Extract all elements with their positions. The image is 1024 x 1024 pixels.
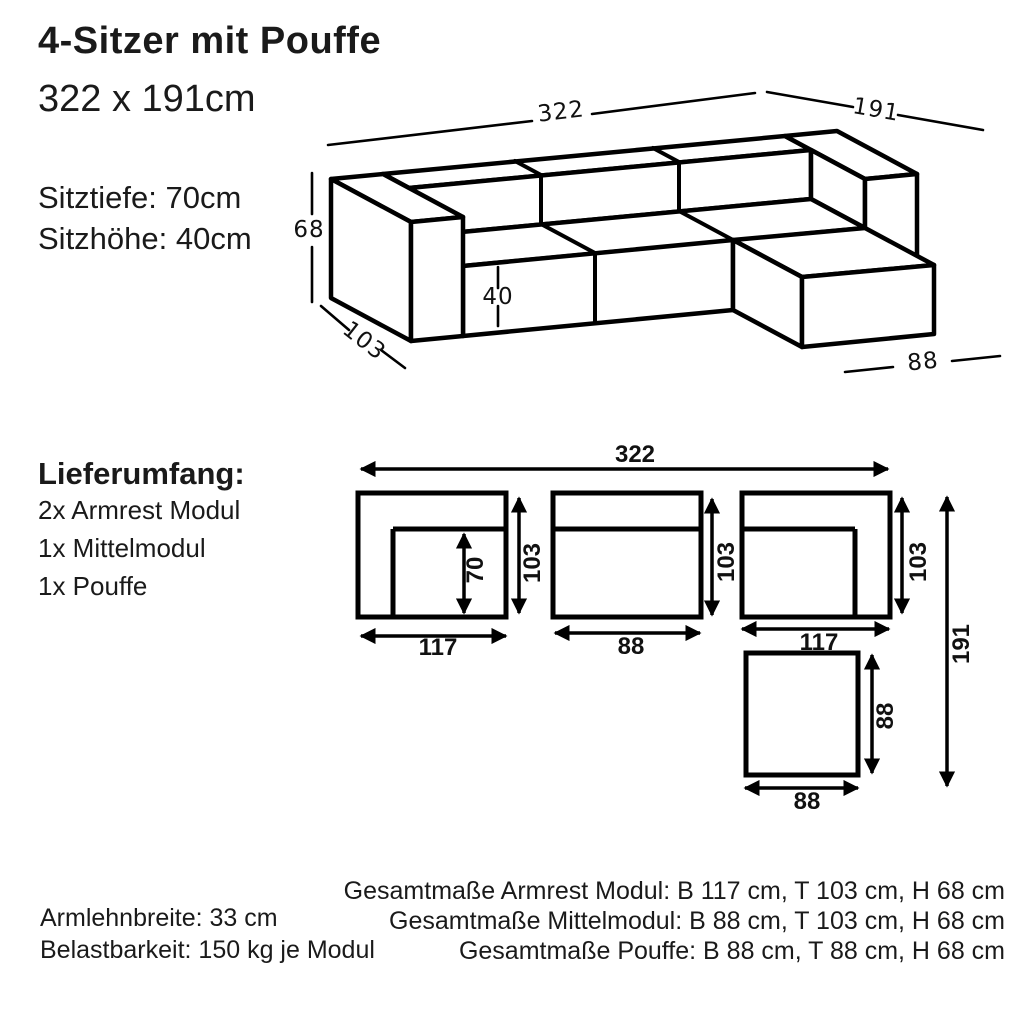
- plan-dim-depth-middle-label: 103: [713, 542, 741, 582]
- overall-size-armrest-module-text: Gesamtmaße Armrest Modul: B 117 cm, T 10…: [344, 877, 1005, 906]
- pouffe-plan: [746, 653, 858, 775]
- seat-depth-text: Sitztiefe: 70cm: [38, 180, 241, 216]
- armrest-module-right-plan: [742, 493, 890, 617]
- overall-size-pouffe-text: Gesamtmaße Pouffe: B 88 cm, T 88 cm, H 6…: [459, 937, 1005, 966]
- plan-dim-pouffe-width-label: 88: [794, 788, 821, 816]
- iso-dim-pouffe-width-label: 88: [906, 347, 940, 376]
- delivery-item-middle: 1x Mittelmodul: [38, 533, 206, 564]
- plan-dim-armrest-right-label: 117: [800, 629, 839, 657]
- plan-dim-middle-width-label: 88: [618, 633, 645, 661]
- iso-dim-seat-height-label: 40: [482, 284, 513, 310]
- plan-dim-seat-depth-label: 70: [462, 557, 490, 584]
- plan-dim-depth-right-label: 103: [905, 542, 933, 582]
- armrest-module-left-plan: [358, 493, 506, 617]
- load-capacity-text: Belastbarkeit: 150 kg je Modul: [40, 936, 375, 965]
- armrest-width-text: Armlehnbreite: 33 cm: [40, 904, 278, 933]
- delivery-scope-heading: Lieferumfang:: [38, 456, 245, 492]
- iso-dim-height-label: 68: [293, 217, 324, 243]
- overall-size-text: 322 x 191cm: [38, 78, 256, 121]
- plan-dim-total-width-label: 322: [615, 441, 655, 469]
- seat-height-text: Sitzhöhe: 40cm: [38, 221, 252, 257]
- plan-dim-depth-left-label: 103: [519, 543, 547, 583]
- sofa-isometric-drawing: [331, 131, 934, 347]
- product-dimension-sheet: 4-Sitzer mit Pouffe 322 x 191cm Sitztief…: [0, 0, 1024, 1024]
- overall-size-middle-module-text: Gesamtmaße Mittelmodul: B 88 cm, T 103 c…: [389, 907, 1005, 936]
- middle-module-plan: [553, 493, 701, 617]
- delivery-item-pouffe: 1x Pouffe: [38, 571, 147, 602]
- delivery-item-armrest: 2x Armrest Modul: [38, 495, 240, 526]
- plan-dim-armrest-left-label: 117: [419, 634, 458, 662]
- page-title: 4-Sitzer mit Pouffe: [38, 20, 381, 63]
- plan-dim-total-depth-label: 191: [948, 624, 976, 664]
- plan-dim-pouffe-depth-label: 88: [872, 703, 900, 730]
